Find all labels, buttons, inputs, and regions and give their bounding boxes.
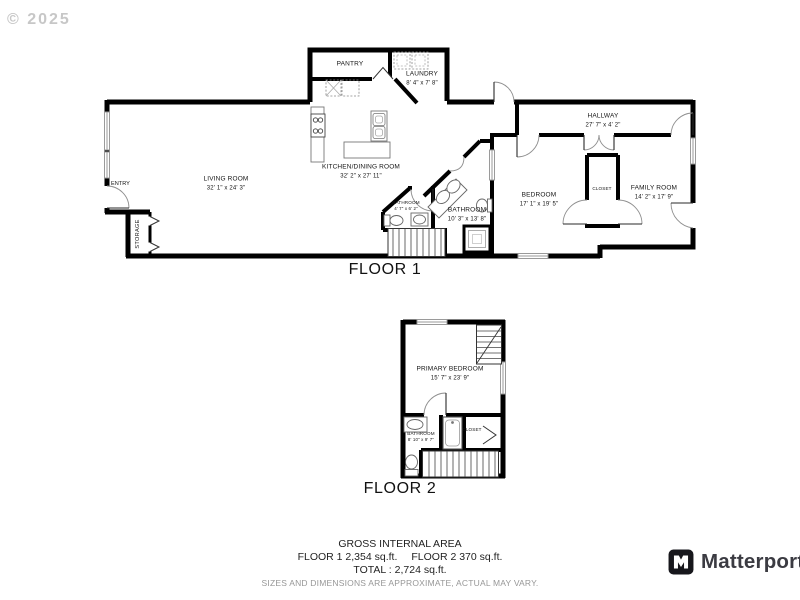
room-label-bathroom-small: BATHROOM 4' 7" x 6' 2" bbox=[392, 200, 419, 212]
floor2-toilet-icon bbox=[405, 455, 418, 476]
room-label-kitchen: KITCHEN/DINING ROOM 32' 2" x 27' 11" bbox=[322, 164, 400, 181]
room-label-storage: STORAGE bbox=[135, 219, 141, 248]
room-label-hallway: HALLWAY 27' 7" x 4' 2" bbox=[585, 113, 620, 130]
room-label-pantry: PANTRY bbox=[337, 61, 364, 70]
floor1-area: FLOOR 1 2,354 sq.ft. bbox=[298, 551, 398, 563]
room-label-closet-floor2: CLOSET bbox=[462, 427, 481, 433]
floor2-title: FLOOR 2 bbox=[364, 480, 437, 498]
room-label-closet-floor1: CLOSET bbox=[592, 186, 611, 192]
bathtub-icon bbox=[443, 417, 462, 449]
refrigerator-icon bbox=[326, 80, 359, 96]
room-label-living: LIVING ROOM 32' 1" x 24' 3" bbox=[204, 176, 249, 193]
floor2-door-arc bbox=[424, 393, 446, 415]
room-label-bathroom-main: BATHROOM 10' 3" x 13' 8" bbox=[448, 207, 487, 224]
room-label-laundry: LAUNDRY 8' 4" x 7' 8" bbox=[406, 71, 438, 88]
brand-name: Matterport bbox=[701, 550, 800, 574]
room-label-family: FAMILY ROOM 14' 2" x 17' 9" bbox=[631, 185, 677, 202]
footer-disclaimer: SIZES AND DIMENSIONS ARE APPROXIMATE, AC… bbox=[0, 578, 800, 588]
stairs-floor1-icon bbox=[388, 229, 445, 257]
floor2-area: FLOOR 2 370 sq.ft. bbox=[411, 551, 502, 563]
room-label-bedroom: BEDROOM 17' 1" x 19' 5" bbox=[520, 192, 559, 209]
matterport-brand: Matterport bbox=[668, 549, 800, 575]
shower-icon bbox=[464, 226, 490, 252]
room-label-bathroom-floor2: BATHROOM 8' 10" x 9' 7" bbox=[407, 431, 434, 443]
copyright-watermark: © 2025 bbox=[7, 11, 71, 29]
room-label-primary-bedroom: PRIMARY BEDROOM 15' 7" x 23' 9" bbox=[416, 366, 483, 383]
stove-icon bbox=[311, 114, 325, 137]
washer-dryer-icons bbox=[394, 52, 428, 69]
stairs-floor2-upper-icon bbox=[477, 325, 502, 364]
room-label-entry: ENTRY bbox=[111, 181, 130, 187]
stairs-floor2-lower-icon bbox=[423, 451, 499, 477]
floor2-closet-door-chevron-icon bbox=[483, 426, 496, 444]
floorplan-drawing bbox=[0, 0, 800, 600]
floor2-sink-icon bbox=[404, 417, 427, 432]
floor1-title: FLOOR 1 bbox=[349, 261, 422, 279]
matterport-logo-icon bbox=[668, 549, 694, 575]
floorplan-page: © 2025 PANTRY LAUNDRY 8' 4" x 7' 8" HALL… bbox=[0, 0, 800, 600]
